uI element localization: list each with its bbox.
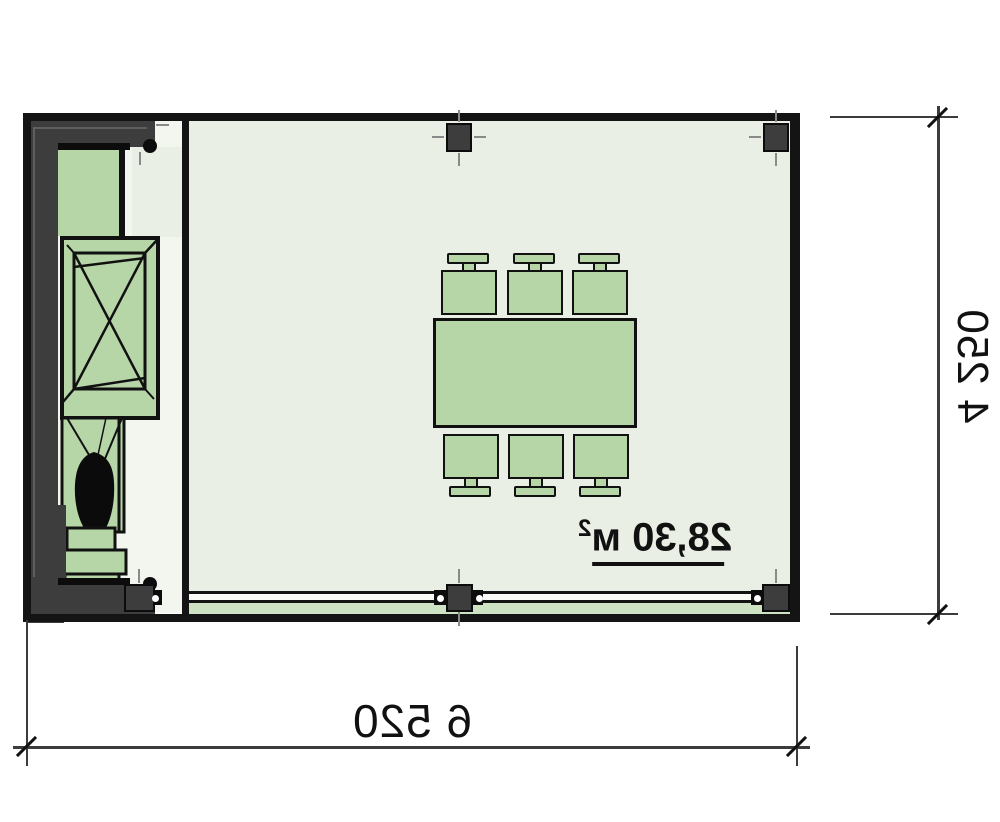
annex-pilaster (55, 505, 66, 585)
window-mullion-icon (446, 584, 473, 612)
chair (443, 434, 499, 498)
window-mullion-icon (762, 584, 790, 612)
centerline-tick (775, 569, 777, 583)
structural-column-icon (446, 123, 472, 152)
room-area-label: 28,30 м2 (540, 506, 770, 564)
chair (573, 434, 629, 498)
centerline-tick (139, 152, 141, 165)
centerline-tick (458, 110, 460, 122)
width-dimension-label: 6 520 (330, 698, 494, 744)
annex-inner-wall-top (58, 143, 130, 150)
centerline-tick (749, 136, 761, 138)
annex-counter (58, 147, 125, 236)
right-wall (790, 113, 800, 622)
wall-joint-dot-top (143, 139, 157, 153)
centerline-tick (458, 569, 460, 583)
structural-column-icon (763, 123, 789, 152)
annex-plant-icon (58, 418, 130, 594)
room-area-text: 28,30 м2 (574, 506, 736, 564)
centerline-tick (775, 153, 777, 166)
chair (508, 434, 564, 498)
centerline-tick (775, 110, 777, 122)
left-outer-wall (23, 113, 31, 622)
dimension-line-depth (937, 106, 940, 620)
wall-seam-vertical (33, 127, 35, 577)
glazing-line-outer (188, 591, 790, 594)
chair-seat (443, 434, 499, 479)
dining-table (433, 318, 637, 428)
chair-seat (441, 270, 497, 315)
chair (572, 253, 628, 317)
centerline-tick (458, 612, 460, 626)
centerline-tick (138, 569, 140, 583)
chair-seat (573, 434, 629, 479)
annex-inner-wall-bottom (58, 578, 130, 585)
mullion-bolt (152, 595, 159, 602)
chair-back (579, 486, 621, 497)
depth-dimension-label: 4 250 (949, 291, 995, 441)
room-left-wall (182, 121, 189, 614)
plant-silhouette (75, 452, 114, 528)
centerline-tick (156, 124, 169, 126)
chair-back (514, 486, 556, 497)
chair-seat (507, 270, 563, 315)
centerline-tick (458, 153, 460, 166)
annex-crossed-box-icon (60, 236, 160, 420)
annex-left-wall (31, 121, 58, 614)
square-superscript: 2 (578, 515, 591, 542)
chair-seat (572, 270, 628, 315)
chair (507, 253, 563, 317)
window-mullion-icon (124, 584, 155, 612)
floor-plan-canvas: 28,30 м2 6 520 4 250 (0, 0, 1000, 822)
chair-back (449, 486, 491, 497)
mullion-bolt (754, 595, 761, 602)
wall-seam-horizontal (33, 127, 147, 129)
chair-seat (508, 434, 564, 479)
chair (441, 253, 497, 317)
bottom-wall (23, 614, 800, 622)
centerline-tick (474, 136, 486, 138)
top-wall (23, 113, 800, 121)
window-sill-band (188, 603, 790, 614)
mullion-bolt (437, 595, 444, 602)
centerline-tick (432, 136, 444, 138)
mullion-bolt (476, 595, 483, 602)
